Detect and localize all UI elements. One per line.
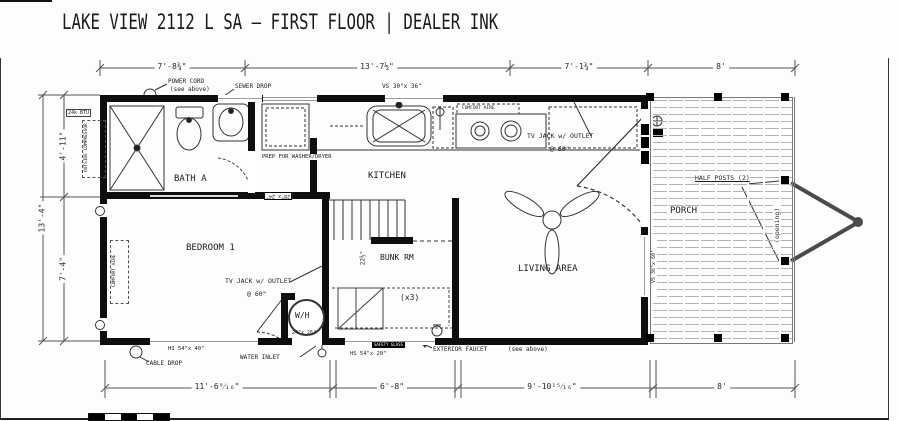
porch-post — [781, 334, 789, 342]
porch-post — [714, 334, 722, 342]
stairs-icon — [329, 200, 452, 241]
sewer-drop-strip — [263, 95, 317, 102]
room-label-bunk: BUNK RM — [380, 253, 414, 262]
kitchen-window-pane — [385, 98, 443, 99]
half-posts-bracket — [791, 183, 863, 261]
closet-door-swing — [257, 298, 283, 341]
bath-sink-icon — [213, 104, 249, 141]
range-icon — [456, 114, 546, 148]
outlet-symbol-2 — [95, 320, 105, 330]
kitchen-window-label: VS 30"x 36" — [382, 83, 422, 90]
compressor-btu-label: 24k BTU — [66, 109, 91, 117]
dim-top-2: 13'-7½" — [357, 63, 397, 72]
porch-door-swing — [577, 114, 646, 227]
room-label-bath: BATH A — [174, 174, 207, 184]
toilet-icon — [176, 107, 203, 150]
compressor-label: OUTSIDE COMPRESSOR — [84, 121, 89, 175]
bedroom-ac-label: COMFORT AIRE — [112, 242, 117, 300]
tv-jack-living-label: TV JACK w/ OUTLET — [527, 132, 594, 140]
bedroom-window-label: HS 54"x 40" — [168, 346, 204, 352]
room-label-bedroom: BEDROOM 1 — [186, 243, 235, 253]
bedroom-window-pane — [150, 341, 258, 342]
porch-edge-line — [794, 97, 795, 342]
tv-jack-living-height: @ 60" — [550, 145, 570, 153]
shower-icon — [110, 106, 164, 190]
washer-dryer-space — [262, 104, 309, 150]
room-label-kitchen: KITCHEN — [368, 171, 406, 181]
bath-door-gap — [248, 151, 255, 193]
dim-bottom-2: 6'-8" — [377, 383, 407, 392]
exterior-faucet-label: EXTERIOR FAUCET — [433, 346, 487, 353]
porch-window-pane — [644, 237, 645, 295]
sewer-drop-label: SEWER DROP — [235, 83, 271, 90]
wh-access-label: 24"x 26" — [292, 330, 316, 336]
dim-top-3: 7'-1¾" — [562, 63, 597, 72]
cable-drop-label: CABLE DROP — [146, 360, 182, 367]
bath-window-pane — [218, 98, 262, 99]
power-cord-note: (see above) — [170, 86, 210, 93]
safety-glass-tag: SAFETY GLASS — [372, 342, 405, 348]
dim-left-upper: 4'-11" — [60, 130, 69, 163]
stair-base-wall — [371, 237, 413, 244]
ceiling-fan-icon — [502, 187, 603, 274]
wh-access-gap — [292, 338, 322, 345]
porch-post — [714, 93, 722, 101]
dim-bottom-1: 11'-6⁹⁄₁₆" — [192, 383, 243, 392]
porch-deck — [650, 97, 793, 344]
prep-wd-label: PREP FOR WASHER/DRYER — [262, 154, 332, 160]
door-tag-block-3 — [641, 151, 649, 164]
wall-wh-closet-stub — [281, 293, 295, 300]
room-label-living: LIVING AREA — [518, 264, 578, 274]
dim-lines-top — [96, 60, 799, 76]
floor-plan-sheet: LAKE VIEW 2112 L SA – FIRST FLOOR | DEAL… — [0, 0, 900, 421]
power-cord-label: POWER CORD — [168, 78, 204, 85]
porch-post — [646, 93, 654, 101]
porch-half-post-upper — [781, 176, 789, 184]
tv-jack-bedroom-label: TV JACK w/ OUTLET — [225, 277, 292, 285]
porch-half-post-lower — [781, 257, 789, 265]
wall-access-label: 28"x 24" — [264, 192, 292, 200]
range-brand-label: COMFORT AIRE — [462, 106, 495, 111]
dim-lines-bottom — [101, 360, 799, 398]
water-inlet-label: WATER INLET — [240, 354, 280, 361]
wall-top — [100, 95, 648, 102]
exterior-faucet-note: (see above) — [508, 346, 548, 353]
bunk-detail — [332, 288, 452, 329]
door-tag-block-1 — [641, 124, 649, 135]
dim-stair: 22½" — [361, 249, 368, 267]
dim-top-4: 8' — [713, 63, 729, 72]
bunk-window-label: HS 54"x 20" — [350, 351, 386, 357]
outlet-symbol-1 — [95, 206, 105, 216]
wall-bunk-right — [452, 198, 459, 345]
dim-top-1: 7'-8¾" — [155, 63, 190, 72]
water-heater-label: W/H — [295, 311, 309, 320]
porch-post — [781, 93, 789, 101]
half-posts-label: HALF POSTS (2) — [695, 174, 750, 182]
opening-label: (opening) — [773, 200, 781, 250]
kitchen-sink-icon — [367, 102, 444, 146]
tv-jack-bedroom-height: @ 60" — [247, 290, 267, 298]
porch-window-label: VS 36"x 60" — [651, 235, 657, 297]
dim-bottom-4: 8' — [714, 383, 730, 392]
bunk-qty-label: (x3) — [400, 293, 419, 302]
wall-bath-bedroom-strip — [150, 195, 238, 197]
wall-wd-right — [310, 138, 317, 194]
porch-post — [646, 334, 654, 342]
dim-left-lower: 7'-4" — [60, 255, 69, 283]
room-label-porch: PORCH — [668, 206, 699, 216]
door-tag-block-2 — [641, 137, 649, 148]
dim-left-overall: 13'-4" — [39, 202, 48, 235]
bath-door-swing — [218, 152, 251, 192]
dim-bottom-3: 9'-10¹⁵⁄₁₆" — [524, 383, 580, 392]
